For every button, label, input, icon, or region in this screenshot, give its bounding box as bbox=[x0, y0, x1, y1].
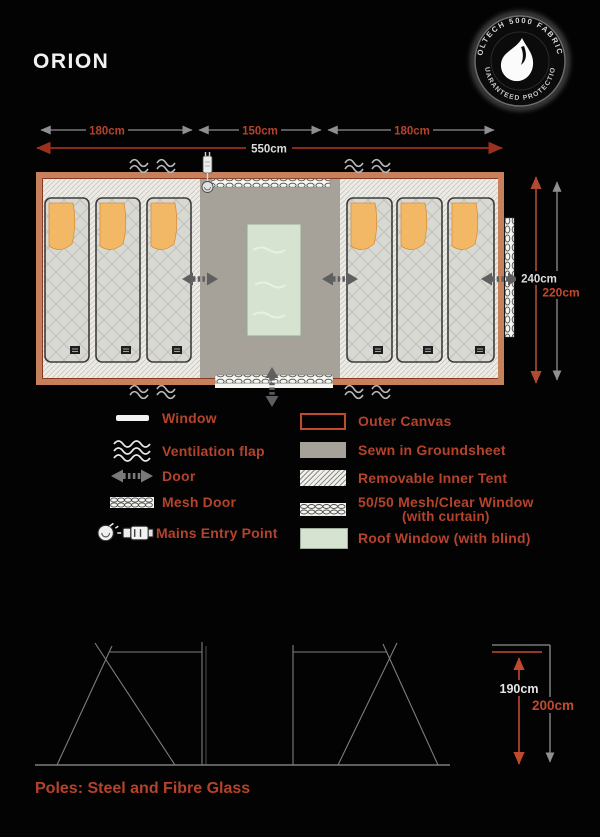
pole-frame-lines bbox=[35, 642, 450, 765]
legend-label: Sewn in Groundsheet bbox=[358, 443, 506, 458]
door-icon bbox=[102, 468, 162, 484]
roof-window-swatch bbox=[300, 528, 348, 549]
legend-label: Removable Inner Tent bbox=[358, 471, 507, 486]
mattress bbox=[397, 198, 442, 362]
inner-tent-swatch bbox=[300, 470, 346, 486]
dim-depth-outer: 240cm bbox=[521, 274, 557, 286]
mattress bbox=[45, 198, 89, 362]
dim-section-right: 180cm bbox=[394, 126, 430, 138]
dim-depth-inner: 220cm bbox=[542, 286, 579, 300]
legend-item-ventilation-flap: Ventilation flap bbox=[102, 438, 265, 464]
floorplan-diagram: 180cm 150cm 180cm 550cm bbox=[0, 0, 600, 420]
depth-dimension-arrows: 240cm 220cm bbox=[516, 177, 584, 383]
legend-item-mesh-door: Mesh Door bbox=[102, 495, 236, 510]
ventilation-flap-icon bbox=[102, 438, 162, 464]
legend-label: Roof Window (with blind) bbox=[358, 531, 531, 546]
dim-section-left: 180cm bbox=[89, 126, 125, 138]
height-dimension-arrows: 190cm 200cm bbox=[492, 645, 579, 764]
dim-section-center: 150cm bbox=[242, 126, 278, 138]
legend-item-mains-entry: Mains Entry Point bbox=[96, 518, 278, 548]
legend-label: Door bbox=[162, 469, 195, 484]
legend-label: Window bbox=[162, 411, 217, 426]
outer-canvas-swatch bbox=[300, 413, 346, 430]
width-dimension-arrows: 180cm 150cm 180cm 550cm bbox=[37, 123, 502, 156]
legend-label: Ventilation flap bbox=[162, 444, 265, 459]
mains-entry-point-icon bbox=[202, 152, 213, 193]
legend-item-window: Window bbox=[102, 411, 217, 426]
legend-item-roof-window: Roof Window (with blind) bbox=[300, 528, 531, 549]
legend-item-door: Door bbox=[102, 468, 195, 484]
dim-height-inner: 190cm bbox=[500, 682, 539, 696]
dim-total-width: 550cm bbox=[251, 144, 287, 156]
roof-window bbox=[247, 224, 301, 336]
mattress bbox=[96, 198, 140, 362]
legend-label: Outer Canvas bbox=[358, 414, 451, 429]
dim-height-outer: 200cm bbox=[532, 698, 574, 713]
mesh-door-icon bbox=[102, 497, 162, 508]
legend-label-line2: (with curtain) bbox=[358, 510, 534, 524]
window-icon bbox=[116, 415, 149, 421]
mains-entry-icon bbox=[96, 518, 156, 548]
legend-item-groundsheet: Sewn in Groundsheet bbox=[300, 442, 506, 458]
legend-item-outer-canvas: Outer Canvas bbox=[300, 413, 451, 430]
poles-note: Poles: Steel and Fibre Glass bbox=[35, 780, 250, 798]
legend-label: Mesh Door bbox=[162, 495, 236, 510]
mesh-clear-window-swatch bbox=[300, 503, 358, 516]
mesh-clear-window-back bbox=[212, 179, 330, 187]
elevation-diagram: 190cm 200cm bbox=[0, 600, 600, 800]
legend-item-inner-tent: Removable Inner Tent bbox=[300, 470, 507, 486]
legend-item-mesh-clear-window: 50/50 Mesh/Clear Window (with curtain) bbox=[300, 495, 534, 524]
tent-spec-sheet: ORION OLTECH 5000 FABRIC GUARANTEED PROT… bbox=[0, 0, 600, 837]
legend-label: Mains Entry Point bbox=[156, 526, 278, 541]
legend-label: 50/50 Mesh/Clear Window (with curtain) bbox=[358, 495, 534, 524]
groundsheet-swatch bbox=[300, 442, 346, 458]
legend-label-line1: 50/50 Mesh/Clear Window bbox=[358, 494, 534, 510]
